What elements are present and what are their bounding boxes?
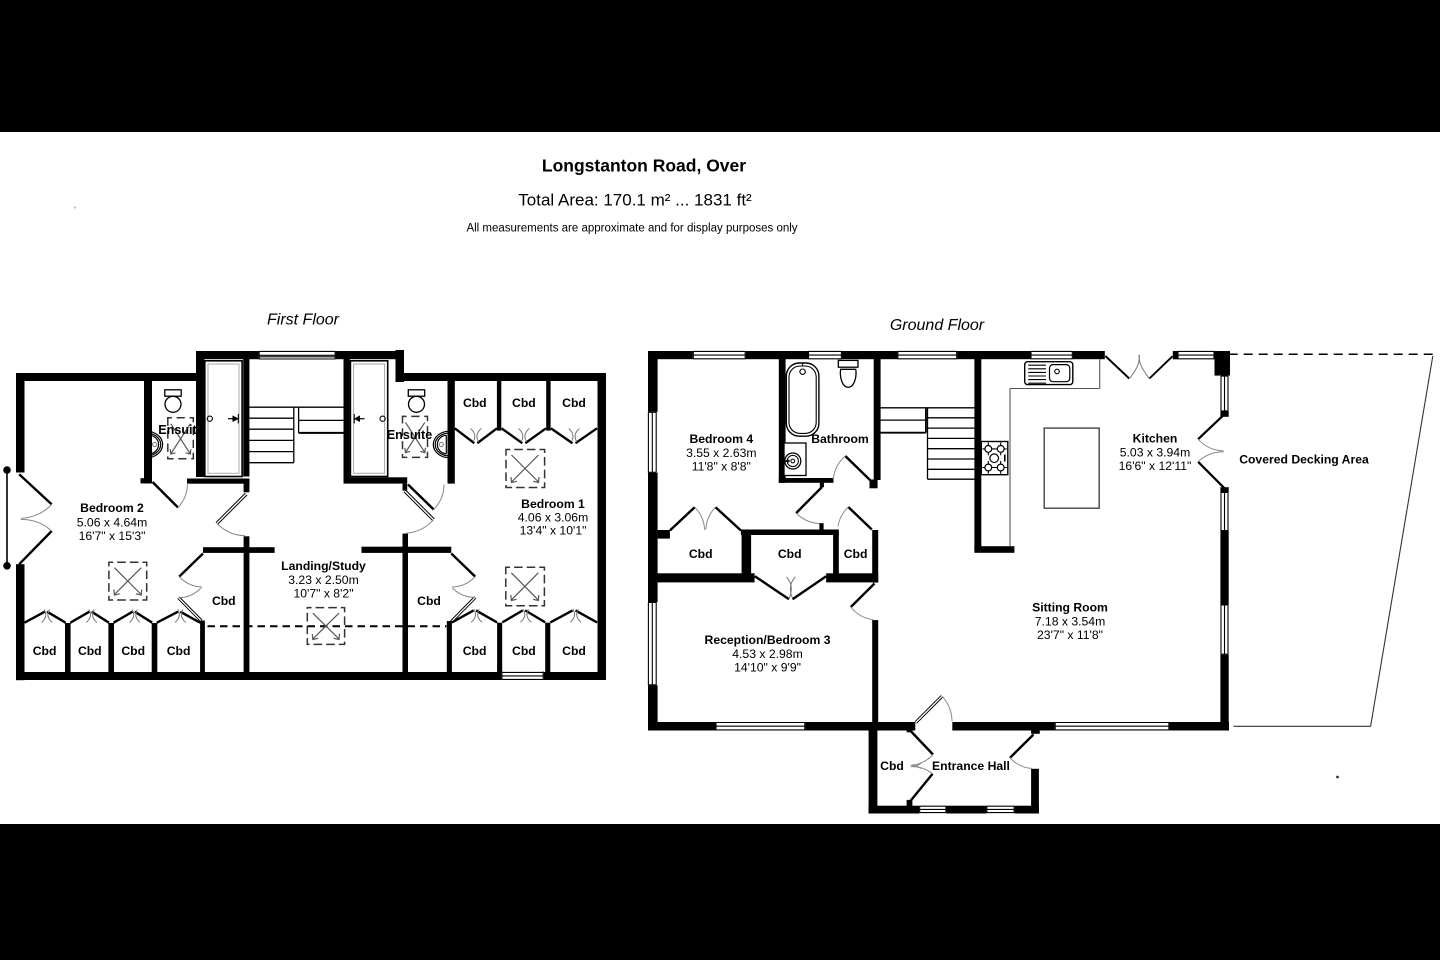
svg-text:13'4" x 10'1": 13'4" x 10'1" bbox=[520, 524, 587, 538]
svg-text:Cbd: Cbd bbox=[463, 396, 487, 410]
svg-text:Ground Floor: Ground Floor bbox=[890, 317, 985, 334]
svg-text:Cbd: Cbd bbox=[167, 644, 191, 658]
svg-text:Entrance Hall: Entrance Hall bbox=[932, 759, 1010, 773]
svg-text:16'7" x 15'3": 16'7" x 15'3" bbox=[79, 529, 146, 543]
svg-text:Cbd: Cbd bbox=[417, 594, 441, 608]
svg-text:Cbd: Cbd bbox=[778, 547, 802, 561]
svg-text:11'8" x 8'8": 11'8" x 8'8" bbox=[692, 460, 751, 474]
svg-text:Covered Decking Area: Covered Decking Area bbox=[1239, 453, 1369, 467]
svg-text:All measurements are approxima: All measurements are approximate and for… bbox=[466, 223, 797, 235]
svg-text:Bedroom 1: Bedroom 1 bbox=[521, 497, 585, 511]
svg-text:Cbd: Cbd bbox=[463, 644, 487, 658]
svg-text:Cbd: Cbd bbox=[78, 644, 102, 658]
svg-text:Ensuite: Ensuite bbox=[387, 428, 433, 442]
svg-text:Cbd: Cbd bbox=[33, 644, 57, 658]
svg-text:Landing/Study: Landing/Study bbox=[281, 559, 366, 573]
svg-text:Reception/Bedroom 3: Reception/Bedroom 3 bbox=[705, 633, 831, 647]
svg-text:3.55 x 2.63m: 3.55 x 2.63m bbox=[686, 446, 756, 460]
svg-text:Cbd: Cbd bbox=[512, 644, 536, 658]
svg-text:Cbd: Cbd bbox=[844, 547, 868, 561]
svg-text:10'7" x 8'2": 10'7" x 8'2" bbox=[293, 587, 353, 601]
svg-text:Kitchen: Kitchen bbox=[1133, 432, 1178, 446]
svg-text:Longstanton Road, Over: Longstanton Road, Over bbox=[542, 156, 746, 176]
svg-text:Cbd: Cbd bbox=[512, 396, 536, 410]
svg-text:First Floor: First Floor bbox=[267, 312, 340, 329]
svg-text:3.23 x 2.50m: 3.23 x 2.50m bbox=[288, 573, 358, 587]
svg-text:14'10" x 9'9": 14'10" x 9'9" bbox=[734, 661, 801, 675]
svg-text:5.03 x 3.94m: 5.03 x 3.94m bbox=[1120, 446, 1190, 460]
svg-text:4.06 x 3.06m: 4.06 x 3.06m bbox=[518, 511, 588, 525]
svg-text:Cbd: Cbd bbox=[212, 594, 236, 608]
svg-text:Bedroom 4: Bedroom 4 bbox=[689, 432, 753, 446]
svg-text:23'7" x 11'8": 23'7" x 11'8" bbox=[1037, 628, 1103, 642]
svg-text:Cbd: Cbd bbox=[562, 644, 586, 658]
svg-text:7.18 x 3.54m: 7.18 x 3.54m bbox=[1035, 615, 1105, 629]
svg-text:5.06 x 4.64m: 5.06 x 4.64m bbox=[77, 516, 147, 530]
svg-text:Cbd: Cbd bbox=[880, 759, 904, 773]
svg-text:Cbd: Cbd bbox=[689, 547, 713, 561]
svg-text:Cbd: Cbd bbox=[121, 644, 145, 658]
svg-text:4.53 x 2.98m: 4.53 x 2.98m bbox=[732, 647, 802, 661]
svg-text:Sitting Room: Sitting Room bbox=[1032, 601, 1108, 615]
svg-text:Total Area: 170.1 m² ... 1831: Total Area: 170.1 m² ... 1831 ft² bbox=[518, 191, 752, 210]
svg-text:Bathroom: Bathroom bbox=[811, 432, 869, 446]
svg-text:Cbd: Cbd bbox=[562, 396, 586, 410]
svg-text:Ensuite: Ensuite bbox=[158, 423, 204, 437]
svg-text:16'6" x 12'11": 16'6" x 12'11" bbox=[1119, 459, 1192, 473]
svg-text:Bedroom 2: Bedroom 2 bbox=[80, 501, 144, 515]
